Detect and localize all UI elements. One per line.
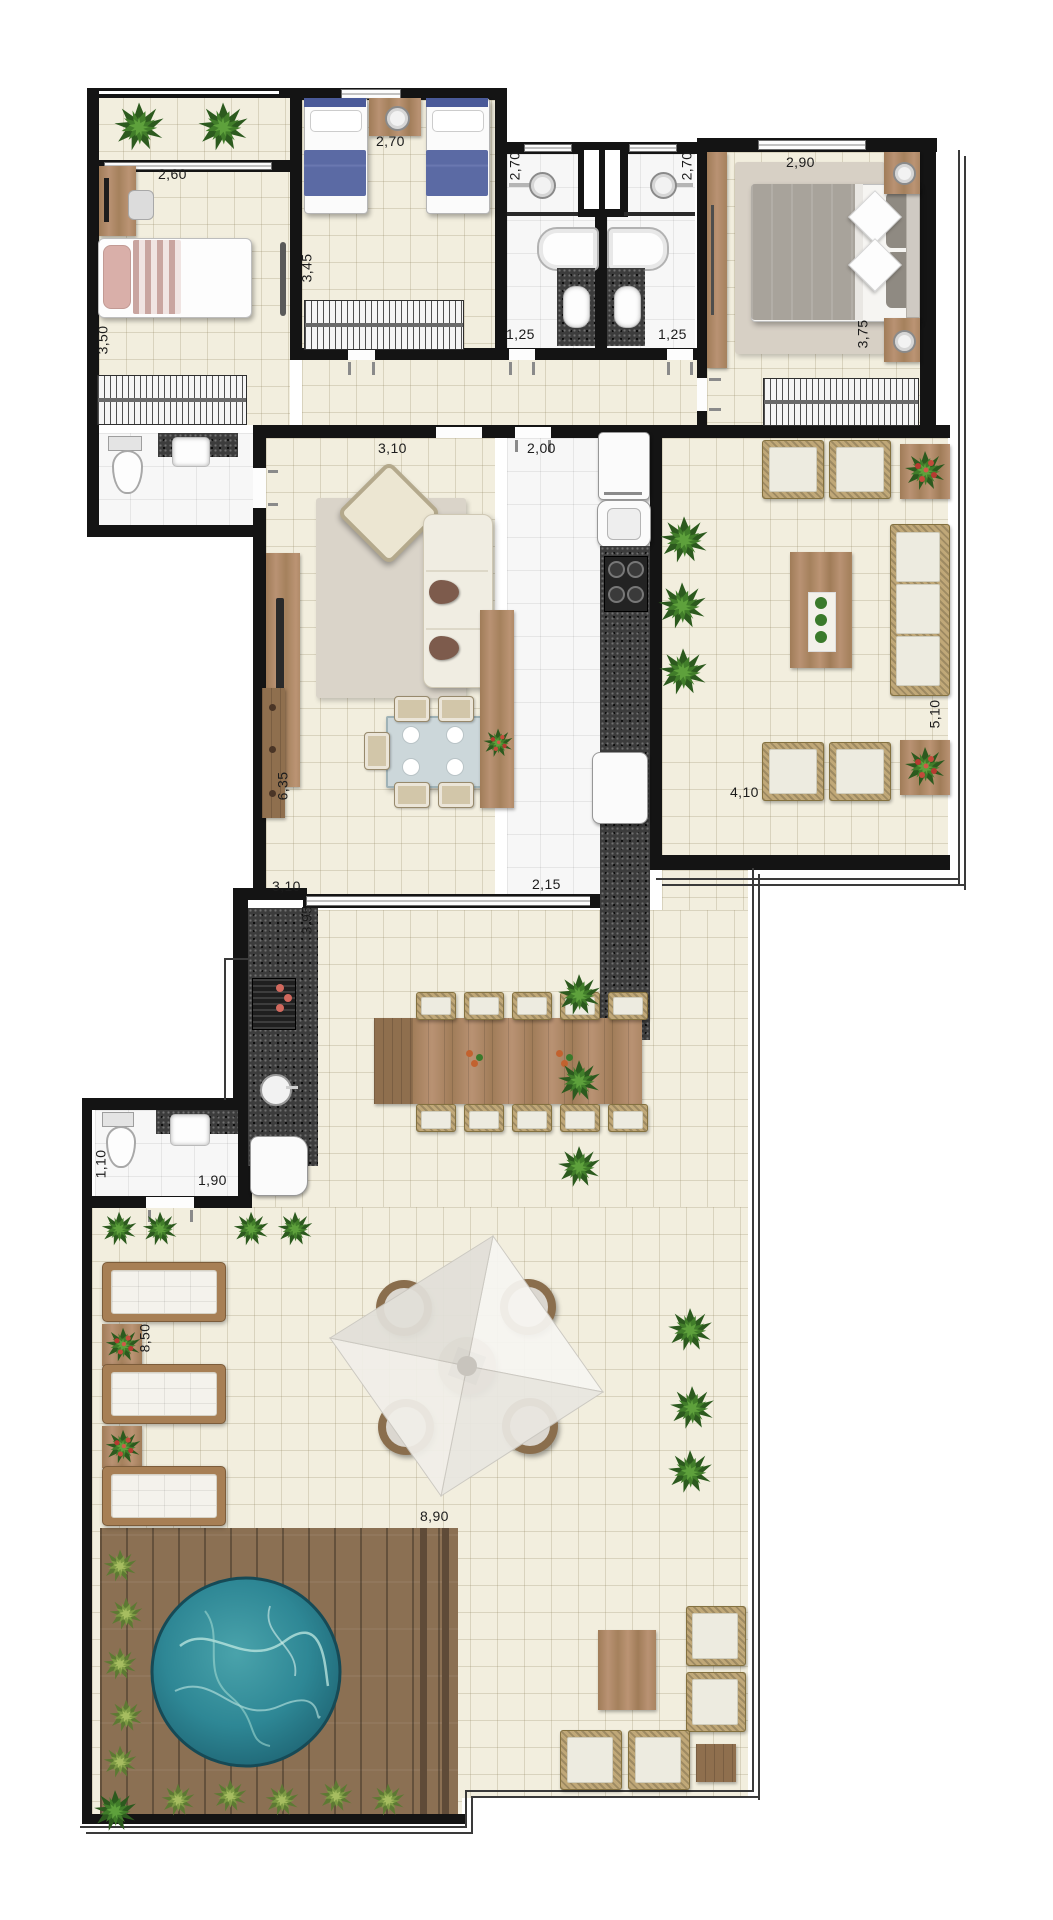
dim-label: 3,10	[378, 440, 407, 456]
master-right-wall	[920, 138, 936, 438]
door-tick	[509, 362, 512, 375]
dining-chair	[438, 696, 474, 722]
table-centerpiece	[556, 1050, 563, 1057]
bedroom2-left-wall	[290, 88, 302, 360]
dining-chair	[364, 732, 390, 770]
plant-icon	[658, 514, 710, 566]
hallway-floor	[302, 358, 697, 427]
terrace-sofa	[890, 524, 950, 696]
gourmet-chair	[608, 1104, 648, 1132]
gourmet-chair	[416, 1104, 456, 1132]
bedroom1-pillow	[103, 245, 131, 309]
bbq-coal	[284, 994, 292, 1002]
gourmet-table-end	[374, 1018, 412, 1104]
bedroom2-right-wall	[495, 88, 507, 360]
plant-icon	[112, 100, 166, 154]
dining-plate	[402, 758, 420, 776]
border-lower-h1	[465, 1790, 754, 1792]
plant-icon	[656, 580, 708, 632]
dim-label: 4,10	[730, 784, 759, 800]
plant-icon	[556, 1144, 602, 1190]
sofa-seat-line	[426, 570, 488, 572]
shrub-icon	[232, 1210, 270, 1248]
terrace-strip-floor	[662, 870, 748, 914]
terrace-armchair	[762, 440, 824, 499]
wc-top-wall	[85, 1098, 252, 1110]
lavabo-bottom-wall	[87, 525, 253, 537]
lavabo-sink	[172, 437, 210, 467]
bar-sink-faucet	[286, 1086, 298, 1089]
flower-plant-icon	[903, 743, 947, 791]
gourmet-left-wall	[233, 895, 248, 1110]
sun-lounger	[102, 1262, 226, 1322]
table-decor-ball	[815, 597, 827, 609]
lounge-armchair	[686, 1606, 746, 1666]
bedroom2-door-gap	[348, 349, 375, 360]
deck-shrub-icon	[160, 1782, 196, 1818]
gourmet-chair	[512, 992, 552, 1020]
door-tick	[190, 1210, 193, 1222]
master-wardrobe-handle	[711, 205, 714, 315]
desk-monitor-icon	[104, 178, 109, 222]
dim-label: 2,70	[678, 152, 694, 181]
hall-closet	[97, 375, 247, 425]
border-step-v1	[465, 1790, 467, 1828]
dining-plate	[402, 726, 420, 744]
dining-chair	[394, 782, 430, 808]
lounge-coffee-table	[598, 1630, 656, 1710]
border-terrace-h1	[656, 878, 960, 880]
border-lower-v2	[758, 874, 760, 1800]
plant-icon	[556, 1058, 602, 1104]
border-terrace-h2	[662, 884, 966, 886]
door-tick	[268, 470, 278, 473]
plant-icon	[666, 1448, 714, 1496]
bathroom1-divider	[507, 212, 578, 216]
wc-door-gap	[146, 1197, 194, 1208]
plant-icon	[666, 1306, 714, 1354]
fridge-handle	[604, 492, 642, 495]
dim-label: 8,50	[136, 1324, 152, 1353]
fridge	[598, 432, 650, 500]
master-lamp-bottom-icon	[893, 330, 916, 353]
dim-label: 2,60	[158, 166, 187, 182]
deck-shrub-icon	[102, 1646, 138, 1682]
dining-sideboard	[480, 610, 514, 808]
table-centerpiece	[466, 1050, 473, 1057]
twin-bed-right-head	[426, 98, 488, 107]
bathroom1-door-gap	[509, 349, 535, 360]
kitchen-sink-basin	[607, 508, 641, 540]
dim-label: 2,15	[532, 876, 561, 892]
shrub-icon	[276, 1210, 314, 1248]
living-opening-gap	[436, 427, 482, 438]
door-tick	[268, 503, 278, 506]
door-tick	[690, 362, 693, 375]
dim-label: 3,50	[94, 326, 110, 355]
shaft-slot1	[584, 150, 599, 209]
gourmet-chair	[464, 1104, 504, 1132]
sail-shade-icon	[322, 1228, 612, 1504]
dim-label: 1,10	[92, 1150, 108, 1179]
twin-bed-right-blanket	[426, 150, 488, 196]
sun-lounger	[102, 1466, 226, 1526]
bathroom2-window	[629, 144, 677, 152]
sliding-door	[306, 896, 592, 906]
door-tick	[348, 362, 351, 375]
master-wardrobe-strip	[707, 152, 727, 368]
twin-bed-left-blanket	[304, 150, 366, 196]
table-decor-ball	[815, 614, 827, 626]
dining-chair	[438, 782, 474, 808]
gourmet-chair	[608, 992, 648, 1020]
lavabo-door-gap	[253, 468, 266, 508]
door-tick	[532, 362, 535, 375]
twin-lamp-icon	[385, 106, 410, 131]
twin-bed-left-pillow	[310, 110, 362, 132]
deck-dark-band1	[420, 1528, 427, 1818]
master-blanket	[751, 184, 855, 320]
plant-icon	[556, 972, 602, 1018]
border-lower-v1	[752, 868, 754, 1792]
lounge-armchair	[686, 1672, 746, 1732]
twin-bed-right-pillow	[432, 110, 484, 132]
dim-label: 2,00	[527, 440, 556, 456]
bbq-grill-icon	[252, 978, 296, 1030]
bathroom1-window	[524, 144, 572, 152]
shower1-head-icon	[529, 172, 556, 199]
border-step-v2	[471, 1796, 473, 1832]
lounge-armchair	[628, 1730, 690, 1790]
dim-label: 1,90	[198, 1172, 227, 1188]
door-tick	[372, 362, 375, 375]
gourmet-table	[412, 1018, 642, 1104]
kitchen-entry-gap	[515, 427, 551, 438]
terrace-armchair	[829, 742, 891, 801]
side-terrace-bottom-wall	[650, 855, 950, 870]
shaft-slot2	[605, 150, 620, 209]
pool	[150, 1576, 342, 1768]
dishwasher	[592, 752, 648, 824]
sofa-seat-line	[426, 628, 488, 630]
deck-shrub-icon	[318, 1778, 354, 1814]
border-right-v1	[958, 150, 960, 884]
stove-burner	[608, 561, 625, 578]
door-tick	[515, 440, 518, 452]
master-door-gap	[697, 378, 707, 411]
shower2-head-icon	[650, 172, 677, 199]
bedroom1-door-leaf	[280, 242, 286, 316]
mini-fridge	[250, 1136, 308, 1196]
dim-label: 2,70	[506, 152, 522, 181]
dining-plate	[446, 758, 464, 776]
deck-shrub-icon	[108, 1698, 144, 1734]
border-lower-h2	[471, 1796, 760, 1798]
bathroom2-divider	[624, 212, 695, 216]
bedroom1-blanket	[133, 240, 181, 314]
table-decor-ball	[815, 631, 827, 643]
dim-label: 8,90	[420, 1508, 449, 1524]
deck-shrub-icon	[212, 1778, 248, 1814]
table-centerpiece	[471, 1060, 478, 1067]
dim-label: 1,25	[506, 326, 535, 342]
plant-icon	[196, 100, 250, 154]
plant-icon	[657, 646, 709, 698]
master-lamp-top-icon	[893, 162, 916, 185]
dining-table	[386, 716, 482, 788]
dining-chair	[394, 696, 430, 722]
door-tick	[709, 408, 721, 411]
desk-chair	[128, 190, 154, 220]
master-headboard	[906, 188, 920, 318]
terrace-armchair	[829, 440, 891, 499]
flower-vase-icon	[482, 722, 514, 764]
stove-burner	[608, 586, 625, 603]
bedroom2-wardrobe	[304, 300, 464, 350]
sink1	[563, 286, 590, 328]
balcony-railing	[99, 91, 279, 94]
deck-shrub-icon	[102, 1548, 138, 1584]
twin-bed-left-head	[304, 98, 366, 107]
shrub-icon	[100, 1210, 138, 1248]
border-notch-v	[224, 958, 226, 1100]
dim-label: 2,70	[376, 133, 405, 149]
wc-sink	[170, 1114, 210, 1146]
cabinet-knob	[269, 746, 276, 753]
bar-sink	[260, 1074, 292, 1106]
stove-burner	[627, 561, 644, 578]
flower-plant-icon	[104, 1428, 142, 1466]
master-window	[758, 140, 866, 150]
deck-shrub-icon	[102, 1744, 138, 1780]
corner-bush-icon	[92, 1788, 138, 1834]
wc-toilet-tank	[102, 1112, 134, 1127]
bathtub1	[537, 227, 599, 271]
deck-shrub-icon	[108, 1596, 144, 1632]
side-terrace-top-wall	[650, 425, 950, 438]
bbq-counter	[248, 908, 318, 1166]
dim-label: 5,10	[926, 700, 942, 729]
lounge-armchair	[560, 1730, 622, 1790]
gourmet-chair	[512, 1104, 552, 1132]
terrace-armchair	[762, 742, 824, 801]
bbq-coal	[276, 1004, 284, 1012]
master-closet	[763, 378, 919, 426]
deck-dark-band2	[442, 1528, 449, 1818]
dim-label: 1,25	[658, 326, 687, 342]
sink2	[614, 286, 641, 328]
apartment-floor-plan: 2,60 3,50 2,70 3,45 2,70 2,70 1,25 1,25 …	[0, 0, 1053, 1920]
bathtub2	[607, 227, 669, 271]
table-centerpiece	[476, 1054, 483, 1061]
lounge-side-table	[696, 1744, 736, 1782]
deck-shrub-icon	[264, 1782, 300, 1818]
border-notch-h	[224, 958, 248, 960]
lavabo-toilet-tank	[108, 436, 142, 451]
gourmet-chair	[464, 992, 504, 1020]
dim-label: 2,90	[786, 154, 815, 170]
plant-icon	[668, 1384, 716, 1432]
dim-label: 3,45	[298, 254, 314, 283]
border-right-v2	[964, 156, 966, 890]
gourmet-chair	[560, 1104, 600, 1132]
bathroom2-door-gap	[667, 349, 693, 360]
door-tick	[667, 362, 670, 375]
stove-burner	[627, 586, 644, 603]
flower-plant-icon	[903, 447, 947, 495]
sun-lounger	[102, 1364, 226, 1424]
border-bottom-h1	[80, 1826, 467, 1828]
dim-label: 3,75	[854, 320, 870, 349]
door-tick	[709, 378, 721, 381]
cabinet-knob	[269, 704, 276, 711]
gourmet-chair	[416, 992, 456, 1020]
outside-mask	[462, 1798, 754, 1826]
deck-shrub-icon	[370, 1782, 406, 1818]
dim-label: 3,10	[272, 878, 301, 894]
dining-plate	[446, 726, 464, 744]
border-bottom-h2	[86, 1832, 473, 1834]
shrub-icon	[141, 1210, 179, 1248]
bbq-coal	[276, 984, 284, 992]
dim-label: 3,95	[298, 906, 314, 935]
dim-label: 6,35	[274, 772, 290, 801]
